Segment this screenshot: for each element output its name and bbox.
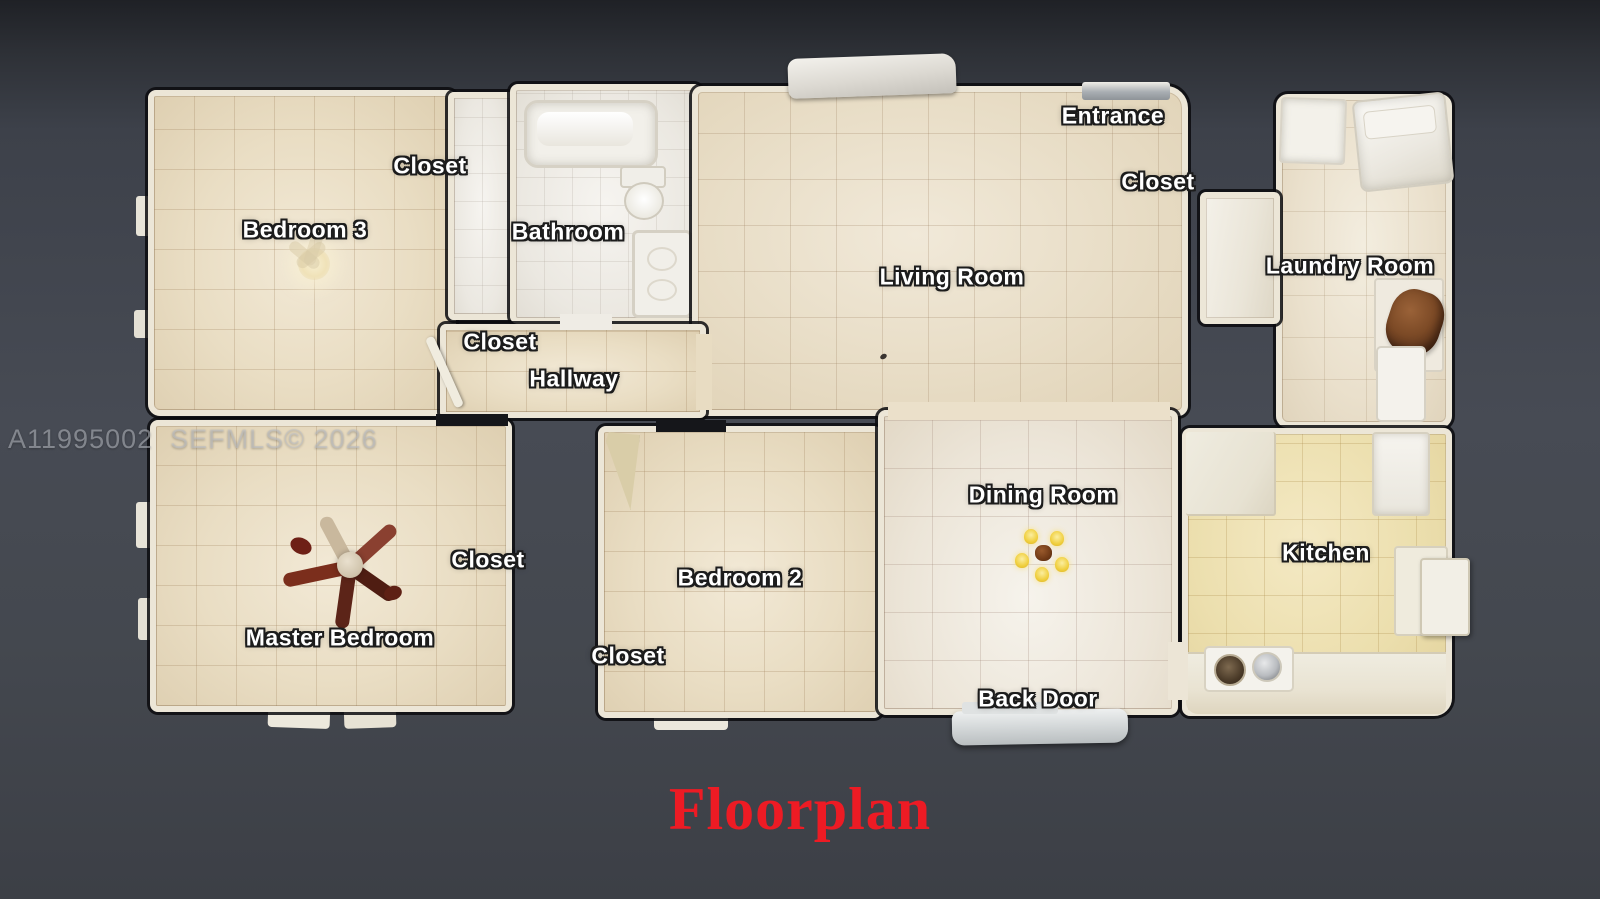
- room-bathroom: [510, 84, 702, 324]
- toilet: [616, 166, 664, 222]
- passage-hallway-living: [696, 334, 712, 410]
- back-door-step: [952, 708, 1129, 745]
- room-kitchen: [1182, 428, 1452, 716]
- room-label-dining-room: Dining Room: [969, 482, 1118, 509]
- doorway-master: [436, 414, 508, 426]
- room-dining-room: [878, 410, 1178, 715]
- room-label-master-closet: Closet: [451, 547, 524, 574]
- passage-living-dining: [888, 402, 1170, 420]
- laundry-basin: [1376, 346, 1426, 422]
- refrigerator: [1372, 432, 1430, 516]
- doorway-bedroom2: [656, 420, 726, 432]
- bathroom-vanity: [632, 230, 692, 318]
- passage-dining-kitchen: [1168, 642, 1188, 700]
- chandelier-bulb: [1050, 531, 1064, 546]
- floor-speck: [879, 353, 888, 361]
- floorplan-image: Entrance Closet Bedroom 3 Closet Bathroo…: [0, 0, 1600, 899]
- kitchen-sink: [1204, 646, 1294, 692]
- open-door-leaf: [606, 432, 640, 510]
- room-bedroom-3: [148, 90, 456, 416]
- room-label-bedroom-2: Bedroom 2: [678, 565, 803, 592]
- kitchen-counter-left: [1186, 432, 1276, 516]
- chandelier-bulb: [1015, 553, 1029, 568]
- room-label-living-room: Living Room: [880, 264, 1025, 291]
- kitchen-appliance-box: [1420, 558, 1470, 636]
- room-label-bedroom2-closet: Closet: [591, 643, 664, 670]
- passage-bathroom-hallway: [560, 314, 612, 330]
- entrance-threshold: [1082, 82, 1170, 100]
- entrance-porch: [787, 53, 956, 99]
- room-living-room: [692, 86, 1188, 416]
- room-label-bedroom3-closet: Closet: [393, 153, 466, 180]
- room-bedroom3-closet: [448, 92, 516, 320]
- ceiling-fan-bedroom3: [294, 244, 334, 284]
- chandelier-bulb: [1035, 567, 1049, 582]
- room-label-laundry-room: Laundry Room: [1266, 253, 1434, 280]
- laundry-cabinet: [1279, 97, 1347, 165]
- room-label-hall-closet: Closet: [463, 329, 536, 356]
- room-label-entrance: Entrance: [1062, 103, 1164, 130]
- room-label-master-bedroom: Master Bedroom: [246, 625, 434, 652]
- washer-dryer: [1351, 91, 1454, 192]
- bathtub: [524, 100, 658, 168]
- page-title: Floorplan: [0, 775, 1600, 844]
- room-label-entrance-closet: Closet: [1121, 169, 1194, 196]
- room-label-back-door: Back Door: [978, 686, 1098, 713]
- chandelier-bulb: [1024, 529, 1038, 544]
- room-label-kitchen: Kitchen: [1282, 540, 1370, 567]
- room-label-hallway: Hallway: [529, 366, 618, 393]
- room-label-bathroom: Bathroom: [512, 219, 625, 246]
- mls-watermark: A11995002 SEFMLS© 2026: [8, 424, 378, 455]
- fan-blade-fragment: [288, 534, 315, 558]
- chandelier-bulb: [1055, 557, 1069, 572]
- room-label-bedroom-3: Bedroom 3: [243, 217, 368, 244]
